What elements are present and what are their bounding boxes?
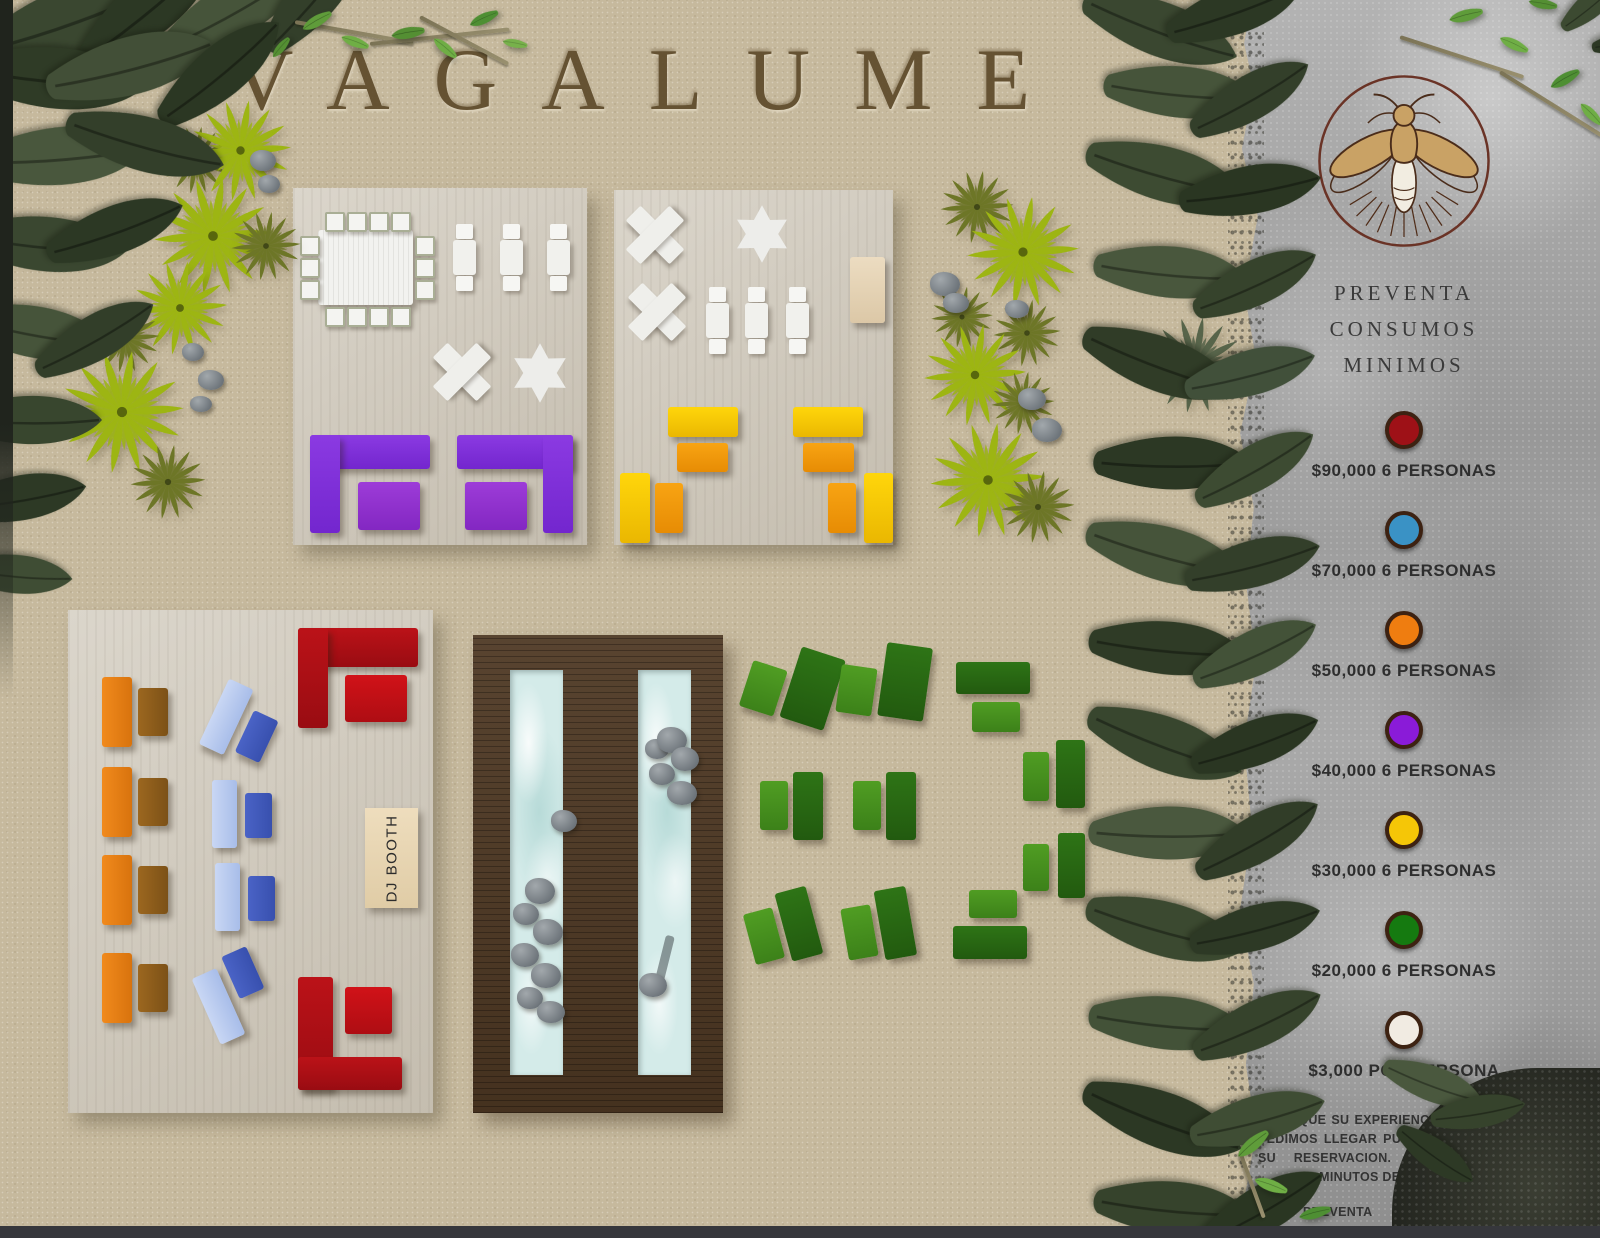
dining-chair bbox=[709, 287, 726, 302]
price-tier-label: $40,000 6 PERSONAS bbox=[1252, 761, 1556, 781]
yellow-ottoman bbox=[803, 443, 854, 472]
orange-sofa bbox=[102, 855, 132, 925]
rock bbox=[531, 963, 561, 988]
yellow-ottoman bbox=[677, 443, 728, 472]
rock bbox=[1005, 300, 1029, 318]
brown-ottoman bbox=[138, 688, 168, 736]
x-table bbox=[431, 341, 493, 403]
dining-chair bbox=[456, 224, 473, 239]
yellow-ottoman bbox=[655, 483, 683, 533]
green-lounge-pair bbox=[1023, 740, 1087, 810]
dining-chair bbox=[503, 276, 520, 291]
orange-sofa bbox=[102, 677, 132, 747]
rock bbox=[533, 919, 563, 945]
green-lounge-pair bbox=[953, 890, 1027, 962]
pool-deck bbox=[473, 635, 723, 1113]
price-tier-label: $30,000 6 PERSONAS bbox=[1252, 861, 1556, 881]
price-tier-dot bbox=[1385, 1011, 1423, 1049]
dining-chair bbox=[550, 276, 567, 291]
rock bbox=[513, 903, 539, 925]
rock bbox=[671, 747, 699, 771]
small-table bbox=[745, 303, 768, 338]
yellow-sofa bbox=[864, 473, 893, 543]
deck-dj-zone: DJ BOOTH bbox=[68, 610, 433, 1113]
rock bbox=[649, 763, 675, 785]
star-table bbox=[509, 342, 571, 404]
dining-chair bbox=[369, 307, 389, 327]
dining-chair bbox=[748, 339, 765, 354]
dining-chair bbox=[456, 276, 473, 291]
dining-chair bbox=[300, 258, 320, 278]
blue-lounge-pair bbox=[215, 863, 279, 943]
green-lounge-pair bbox=[956, 662, 1030, 732]
deck-purple-zone bbox=[293, 188, 587, 545]
small-table bbox=[706, 303, 729, 338]
palm-tree bbox=[129, 443, 207, 521]
small-table bbox=[500, 240, 523, 275]
purple-ottoman bbox=[465, 482, 527, 530]
dining-chair bbox=[415, 236, 435, 256]
purple-sofa bbox=[310, 435, 340, 533]
dining-chair bbox=[748, 287, 765, 302]
orange-sofa bbox=[102, 767, 132, 837]
yellow-ottoman bbox=[828, 483, 856, 533]
red-lounge-group bbox=[298, 628, 418, 728]
brown-ottoman bbox=[138, 866, 168, 914]
dining-chair bbox=[300, 280, 320, 300]
rock bbox=[639, 973, 667, 997]
small-table bbox=[547, 240, 570, 275]
rock bbox=[182, 343, 204, 361]
palm-tree bbox=[230, 210, 302, 282]
rock bbox=[525, 878, 555, 904]
price-tier-dot bbox=[1385, 511, 1423, 549]
dining-chair bbox=[369, 212, 389, 232]
dining-chair bbox=[325, 307, 345, 327]
dining-chair bbox=[347, 307, 367, 327]
dining-chair bbox=[300, 236, 320, 256]
green-lounge-pair bbox=[835, 636, 933, 725]
dining-chair bbox=[415, 280, 435, 300]
left-shadow-edge bbox=[0, 0, 13, 700]
price-tier-dot bbox=[1385, 411, 1423, 449]
dining-chair bbox=[415, 258, 435, 278]
dining-chair bbox=[789, 339, 806, 354]
palm-tree bbox=[1000, 469, 1076, 545]
x-table bbox=[624, 204, 686, 266]
jungle-leaf bbox=[0, 390, 105, 450]
rock bbox=[198, 370, 224, 390]
blue-lounge-pair bbox=[193, 679, 287, 784]
rock bbox=[551, 810, 577, 832]
rock bbox=[667, 781, 697, 805]
yellow-sofa bbox=[793, 407, 863, 437]
firefly-logo-icon bbox=[1309, 66, 1499, 256]
green-lounge-pair bbox=[738, 633, 846, 734]
side-table bbox=[850, 257, 885, 323]
blue-lounge-pair bbox=[212, 780, 276, 860]
brown-ottoman bbox=[138, 964, 168, 1012]
brown-ottoman bbox=[138, 778, 168, 826]
red-lounge-group bbox=[298, 977, 418, 1090]
price-tier-dot bbox=[1385, 811, 1423, 849]
price-tier-dot bbox=[1385, 911, 1423, 949]
rock bbox=[1032, 418, 1062, 442]
rock bbox=[258, 175, 280, 193]
small-table bbox=[786, 303, 809, 338]
dj-booth: DJ BOOTH bbox=[365, 808, 418, 908]
yellow-sofa bbox=[620, 473, 650, 543]
rock bbox=[1018, 388, 1046, 410]
blue-lounge-pair bbox=[188, 946, 281, 1051]
dining-chair bbox=[391, 212, 411, 232]
bottom-frame-bar bbox=[0, 1226, 1600, 1238]
dining-chair bbox=[709, 339, 726, 354]
rock bbox=[537, 1001, 565, 1023]
dining-chair bbox=[325, 212, 345, 232]
dining-chair bbox=[503, 224, 520, 239]
dining-chair bbox=[391, 307, 411, 327]
dj-booth-label: DJ BOOTH bbox=[383, 814, 400, 902]
deck-yellow-zone bbox=[614, 190, 893, 545]
yellow-sofa bbox=[668, 407, 738, 437]
x-table bbox=[626, 281, 688, 343]
small-table bbox=[453, 240, 476, 275]
green-lounge-pair bbox=[1023, 833, 1087, 901]
green-lounge-pair bbox=[838, 885, 920, 970]
rock bbox=[511, 943, 539, 967]
price-tier-label: $50,000 6 PERSONAS bbox=[1252, 661, 1556, 681]
dining-chair bbox=[550, 224, 567, 239]
price-tier-dot bbox=[1385, 711, 1423, 749]
star-table bbox=[732, 204, 792, 264]
banquet-table bbox=[318, 230, 413, 305]
rock bbox=[250, 150, 276, 171]
green-lounge-pair bbox=[853, 772, 917, 842]
rock bbox=[943, 293, 969, 313]
price-tier-dot bbox=[1385, 611, 1423, 649]
purple-sofa bbox=[543, 435, 573, 533]
rock bbox=[190, 396, 212, 412]
vine-leaf bbox=[467, 6, 501, 31]
green-lounge-pair bbox=[760, 772, 824, 842]
green-lounge-pair bbox=[740, 885, 827, 975]
dining-chair bbox=[347, 212, 367, 232]
orange-sofa bbox=[102, 953, 132, 1023]
jungle-leaf bbox=[0, 458, 94, 537]
purple-ottoman bbox=[358, 482, 420, 530]
vagalume-seating-map-poster: VAGALUME bbox=[0, 0, 1600, 1238]
dining-chair bbox=[789, 287, 806, 302]
